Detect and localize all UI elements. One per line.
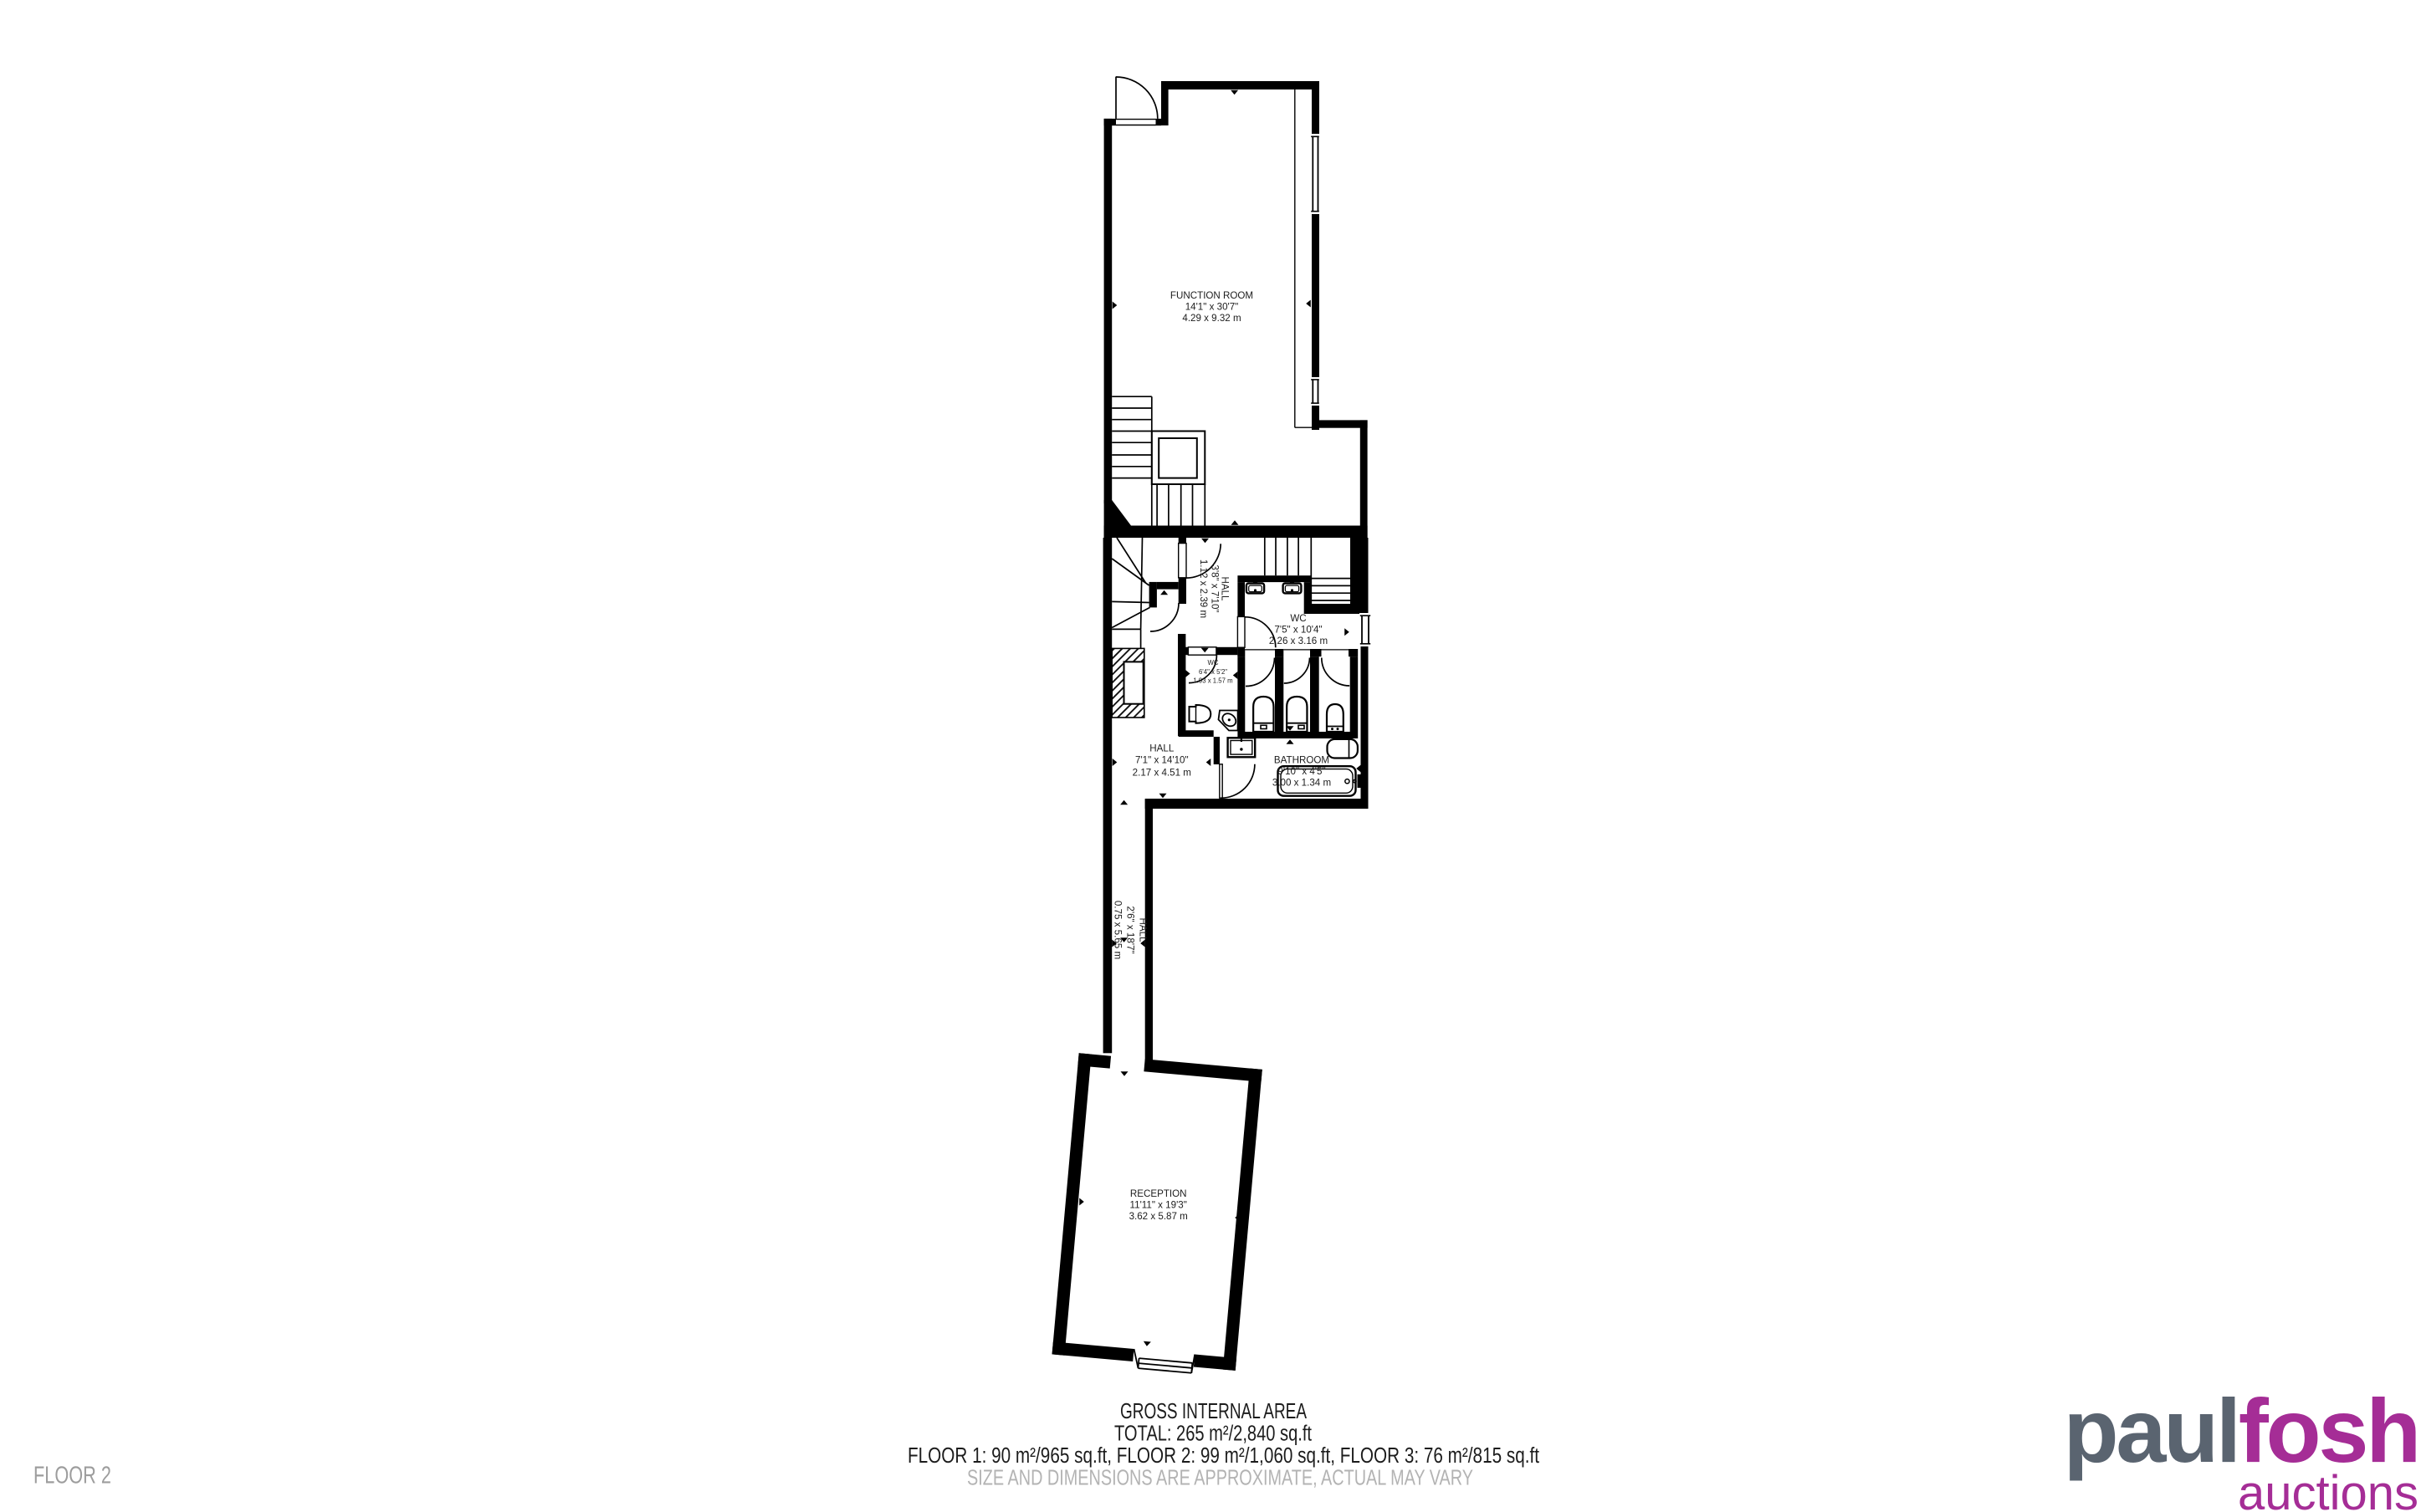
svg-text:1.12 x 2.39 m: 1.12 x 2.39 m	[1198, 559, 1209, 618]
svg-text:FLOOR 2: FLOOR 2	[33, 1463, 111, 1489]
svg-text:HALL: HALL	[1149, 743, 1175, 754]
svg-text:2.26 x 3.16 m: 2.26 x 3.16 m	[1269, 636, 1328, 646]
svg-text:2.17 x 4.51 m: 2.17 x 4.51 m	[1133, 767, 1191, 778]
svg-text:auctions: auctions	[2238, 1466, 2418, 1512]
svg-text:6'4" x 5'2": 6'4" x 5'2"	[1199, 668, 1227, 676]
svg-text:14'1" x 30'7": 14'1" x 30'7"	[1185, 301, 1239, 312]
svg-text:BATHROOM: BATHROOM	[1274, 755, 1329, 766]
svg-text:SIZE AND DIMENSIONS ARE APPROX: SIZE AND DIMENSIONS ARE APPROXIMATE, ACT…	[967, 1467, 1473, 1490]
svg-text:7'5" x 10'4": 7'5" x 10'4"	[1274, 624, 1322, 635]
svg-text:WC: WC	[1208, 659, 1219, 667]
svg-text:11'11" x 19'3": 11'11" x 19'3"	[1130, 1199, 1187, 1210]
svg-text:0.75 x 5.65 m: 0.75 x 5.65 m	[1113, 901, 1123, 959]
svg-text:3.00 x 1.34 m: 3.00 x 1.34 m	[1272, 778, 1331, 789]
svg-text:2'6" x 18'7": 2'6" x 18'7"	[1125, 906, 1136, 953]
svg-text:9'10" x 4'5": 9'10" x 4'5"	[1277, 766, 1325, 777]
svg-text:3'8" x 7'10": 3'8" x 7'10"	[1210, 564, 1221, 612]
svg-text:GROSS INTERNAL AREA: GROSS INTERNAL AREA	[1120, 1400, 1307, 1423]
svg-text:TOTAL: 265 m²/2,840 sq.ft: TOTAL: 265 m²/2,840 sq.ft	[1114, 1423, 1312, 1446]
svg-text:1.93 x 1.57 m: 1.93 x 1.57 m	[1193, 677, 1232, 685]
svg-text:WC: WC	[1290, 613, 1306, 624]
svg-text:4.29 x 9.32 m: 4.29 x 9.32 m	[1182, 313, 1241, 324]
svg-text:RECEPTION: RECEPTION	[1130, 1188, 1187, 1199]
svg-text:HALL: HALL	[1138, 917, 1149, 942]
svg-text:FUNCTION ROOM: FUNCTION ROOM	[1170, 290, 1253, 301]
svg-text:3.62 x 5.87 m: 3.62 x 5.87 m	[1129, 1211, 1188, 1222]
svg-text:FLOOR 1: 90 m²/965 sq.ft, FLOO: FLOOR 1: 90 m²/965 sq.ft, FLOOR 2: 99 m²…	[908, 1444, 1539, 1468]
svg-text:7'1" x 14'10": 7'1" x 14'10"	[1135, 755, 1189, 766]
